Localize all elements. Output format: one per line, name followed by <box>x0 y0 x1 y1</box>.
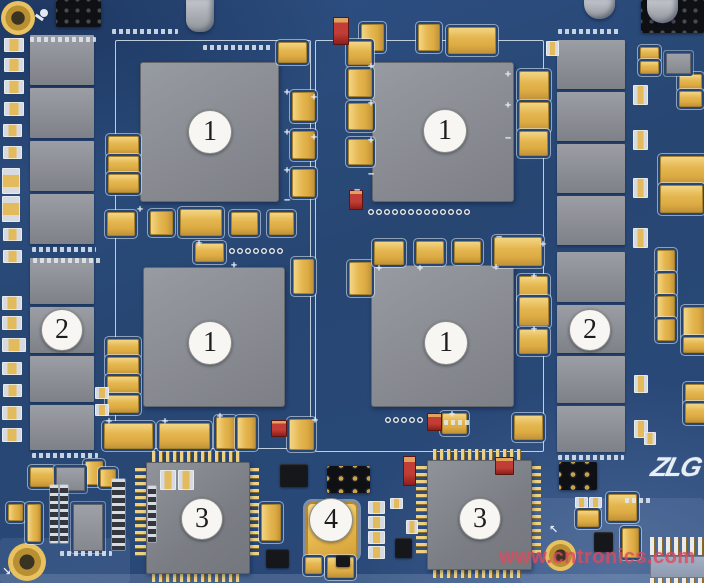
smd-component <box>3 228 22 241</box>
plus-mark: + <box>368 136 374 146</box>
capacitor <box>519 131 548 156</box>
silkscreen-dot <box>277 248 283 254</box>
capacitor <box>519 297 549 326</box>
smd-component <box>634 375 648 393</box>
pad-strip <box>50 485 58 543</box>
capacitor <box>685 384 704 404</box>
callout-label: 1 <box>203 118 217 146</box>
plus-mark: + <box>449 410 455 420</box>
memory-chip <box>30 194 94 244</box>
callout-label: 3 <box>473 505 487 533</box>
smd-component <box>4 58 24 72</box>
capacitor <box>107 395 139 413</box>
capacitor <box>261 504 281 541</box>
capacitor <box>8 504 23 521</box>
capacitor <box>107 357 139 375</box>
capacitor <box>657 296 675 318</box>
silkscreen-arrow-icon: ↘ <box>2 566 11 577</box>
capacitor <box>278 42 307 63</box>
smd-component <box>633 178 648 198</box>
capacitor <box>150 211 173 235</box>
silkscreen-dot <box>392 209 398 215</box>
minus-mark: − <box>368 170 374 180</box>
smd-component <box>2 428 22 442</box>
silkscreen-dot <box>368 209 374 215</box>
silkscreen-dot <box>401 417 407 423</box>
plus-mark: + <box>137 205 143 215</box>
silkscreen-dot <box>253 248 259 254</box>
silkscreen-arrow-icon: ↖ <box>549 524 558 535</box>
smd-component <box>95 387 109 399</box>
capacitor <box>292 169 315 197</box>
capacitor <box>679 91 702 107</box>
silkscreen-dot <box>464 209 470 215</box>
plus-mark: + <box>311 93 317 103</box>
capacitor <box>683 307 704 338</box>
silkscreen-dot <box>432 209 438 215</box>
plus-mark: + <box>531 272 537 282</box>
silkscreen-dot <box>424 209 430 215</box>
capacitor <box>519 71 549 100</box>
red-led <box>427 413 442 431</box>
smd-component <box>368 546 385 559</box>
red-led <box>271 420 287 437</box>
capacitor <box>657 273 675 295</box>
capacitor <box>107 339 139 357</box>
smd-component <box>3 146 22 159</box>
red-led <box>333 17 349 45</box>
plus-mark: + <box>162 417 168 427</box>
silkscreen-dot <box>456 209 462 215</box>
smd-component <box>644 432 656 445</box>
capacitor <box>640 47 659 60</box>
plus-mark: + <box>540 240 546 250</box>
smd-component <box>390 498 403 509</box>
smd-component <box>2 406 22 420</box>
capacitor <box>107 376 139 394</box>
pcb-photo: ↖ ↘ ++++++++++++++++++++++++−−−−− 1 1 1 … <box>0 0 704 583</box>
silkscreen-text <box>558 455 624 460</box>
callout-label: 1 <box>438 117 452 145</box>
callout-4-oscillator: 4 <box>309 498 353 542</box>
smd-component <box>575 497 588 508</box>
smd-component <box>546 41 559 56</box>
pad-strip <box>112 479 125 550</box>
silkscreen-text <box>444 420 470 425</box>
black-ic-chip <box>395 538 412 558</box>
memory-chip <box>557 406 625 452</box>
silkscreen-dot <box>393 417 399 423</box>
memory-chip <box>557 144 625 193</box>
memory-chip <box>30 35 94 85</box>
black-ic-chip <box>336 555 350 567</box>
smd-component <box>2 196 20 222</box>
capacitor <box>448 27 496 54</box>
memory-chip <box>557 196 625 245</box>
callout-label: 2 <box>583 316 597 344</box>
capacitor <box>660 185 703 213</box>
memory-chip <box>557 92 625 141</box>
silkscreen-dot <box>408 209 414 215</box>
silkscreen-text <box>33 258 101 263</box>
callout-2-left-column: 2 <box>41 309 83 351</box>
silkscreen-dots <box>368 209 470 215</box>
silkscreen-dot <box>417 417 423 423</box>
zlg-logo-text: ZLG <box>648 452 703 482</box>
smd-component <box>4 80 24 94</box>
plus-mark: + <box>311 133 317 143</box>
smd-component <box>4 102 24 116</box>
plus-mark: + <box>106 417 112 427</box>
silkscreen-dot <box>261 248 267 254</box>
smd-component <box>3 124 22 137</box>
smd-component <box>178 470 194 490</box>
red-led <box>495 457 514 475</box>
callout-3-qfp-right: 3 <box>459 498 501 540</box>
minus-mark: − <box>496 233 502 243</box>
capacitor <box>108 174 139 193</box>
minus-mark: − <box>284 196 290 206</box>
silkscreen-text <box>112 29 178 34</box>
silkscreen-text <box>32 453 98 458</box>
smd-component <box>633 85 648 105</box>
memory-chip <box>30 405 94 450</box>
capacitor <box>269 212 294 235</box>
callout-1-bga-bottom-right: 1 <box>424 321 468 365</box>
capacitor <box>349 262 372 295</box>
silkscreen-text <box>625 498 651 503</box>
plus-mark: + <box>196 239 202 249</box>
capacitor <box>374 241 404 265</box>
smd-component <box>160 470 176 490</box>
silkscreen-dot <box>385 417 391 423</box>
red-led <box>403 456 416 486</box>
smd-component <box>2 338 26 352</box>
smd-component <box>95 404 109 416</box>
plus-mark: + <box>505 101 511 111</box>
smd-component <box>2 296 22 310</box>
memory-chip <box>30 258 94 304</box>
silkscreen-dot <box>409 417 415 423</box>
minus-mark: − <box>354 186 360 196</box>
smd-component <box>368 516 385 529</box>
silkscreen-dot <box>237 248 243 254</box>
silkscreen-dot <box>376 209 382 215</box>
smd-component <box>368 531 385 544</box>
silkscreen-dot <box>269 248 275 254</box>
smd-component <box>2 168 20 194</box>
memory-chip <box>30 356 94 402</box>
capacitor <box>679 74 702 90</box>
capacitor <box>27 504 41 542</box>
plus-mark: + <box>284 88 290 98</box>
smd-component <box>633 130 648 150</box>
capacitor <box>231 212 258 235</box>
silkscreen-dot <box>400 209 406 215</box>
callout-label: 2 <box>55 316 69 344</box>
minus-mark: − <box>505 134 511 144</box>
silkscreen-dot <box>384 209 390 215</box>
smd-component <box>2 316 22 330</box>
memory-chip <box>30 141 94 191</box>
smd-component <box>4 38 24 52</box>
callout-1-bga-top-left: 1 <box>188 110 232 154</box>
memory-chip <box>30 88 94 138</box>
small-ic-chip <box>73 504 103 551</box>
small-ic-chip <box>666 53 691 74</box>
pad-strip <box>60 485 68 543</box>
capacitor <box>108 156 139 174</box>
plus-mark: + <box>376 264 382 274</box>
smd-component <box>3 250 22 263</box>
capacitor <box>519 102 549 131</box>
callout-1-bga-top-right: 1 <box>423 109 467 153</box>
capacitor <box>683 337 704 353</box>
black-ic-chip <box>266 549 289 568</box>
capacitor <box>289 419 314 450</box>
capacitor <box>30 467 54 487</box>
callout-2-right-column: 2 <box>569 309 611 351</box>
black-ic-chip <box>280 464 308 487</box>
smd-component <box>589 497 602 508</box>
capacitor <box>577 510 599 527</box>
plus-mark: + <box>493 263 499 273</box>
silkscreen-dots <box>229 248 283 254</box>
silkscreen-text <box>60 551 112 556</box>
capacitor <box>416 241 444 264</box>
silkscreen-text <box>30 37 96 42</box>
silkscreen-dot <box>416 209 422 215</box>
plus-mark: + <box>368 99 374 109</box>
smd-component <box>633 228 648 248</box>
plus-mark: + <box>284 166 290 176</box>
plus-mark: + <box>217 412 223 422</box>
capacitor <box>685 403 704 423</box>
zlg-logo: ZLG° <box>648 450 704 483</box>
callout-3-qfp-left: 3 <box>181 498 223 540</box>
plus-mark: + <box>505 70 511 80</box>
plus-mark: + <box>531 325 537 335</box>
silkscreen-dot <box>448 209 454 215</box>
capacitor <box>660 156 704 185</box>
plus-mark: + <box>284 128 290 138</box>
capacitor <box>640 61 659 74</box>
capacitor <box>108 136 139 155</box>
silkscreen-dot <box>245 248 251 254</box>
silkscreen-text <box>558 29 620 34</box>
capacitor <box>348 69 372 97</box>
callout-label: 3 <box>195 505 209 533</box>
capacitor <box>180 209 222 236</box>
smd-component <box>368 501 385 514</box>
silkscreen-dot <box>440 209 446 215</box>
plus-mark: + <box>368 62 374 72</box>
silkscreen-text <box>32 247 96 252</box>
silkscreen-dot <box>229 248 235 254</box>
plus-mark: + <box>231 261 237 271</box>
silkscreen-dots <box>385 417 423 423</box>
capacitor <box>514 415 543 440</box>
plus-mark: + <box>417 264 423 274</box>
memory-chip <box>557 252 625 302</box>
capacitor <box>657 319 675 341</box>
capacitor <box>237 417 256 449</box>
smd-component <box>406 520 418 534</box>
memory-chip <box>557 40 625 89</box>
callout-label: 1 <box>203 329 217 357</box>
callout-label: 1 <box>439 329 453 357</box>
callout-1-bga-bottom-left: 1 <box>188 321 232 365</box>
capacitor <box>305 557 322 574</box>
callout-label: 4 <box>324 506 338 534</box>
capacitor <box>293 259 314 294</box>
plus-mark: + <box>312 416 318 426</box>
capacitor <box>418 24 440 51</box>
capacitor <box>454 241 481 263</box>
capacitor <box>107 212 135 236</box>
memory-chip <box>557 356 625 403</box>
silkscreen-text <box>203 45 271 50</box>
capacitor <box>657 250 675 272</box>
smd-component <box>2 362 22 375</box>
component-layer: ++++++++++++++++++++++++−−−−− <box>0 0 704 583</box>
pad-strip <box>148 486 156 542</box>
watermark: www.cntronics.com <box>499 546 696 569</box>
smd-component <box>3 384 22 397</box>
